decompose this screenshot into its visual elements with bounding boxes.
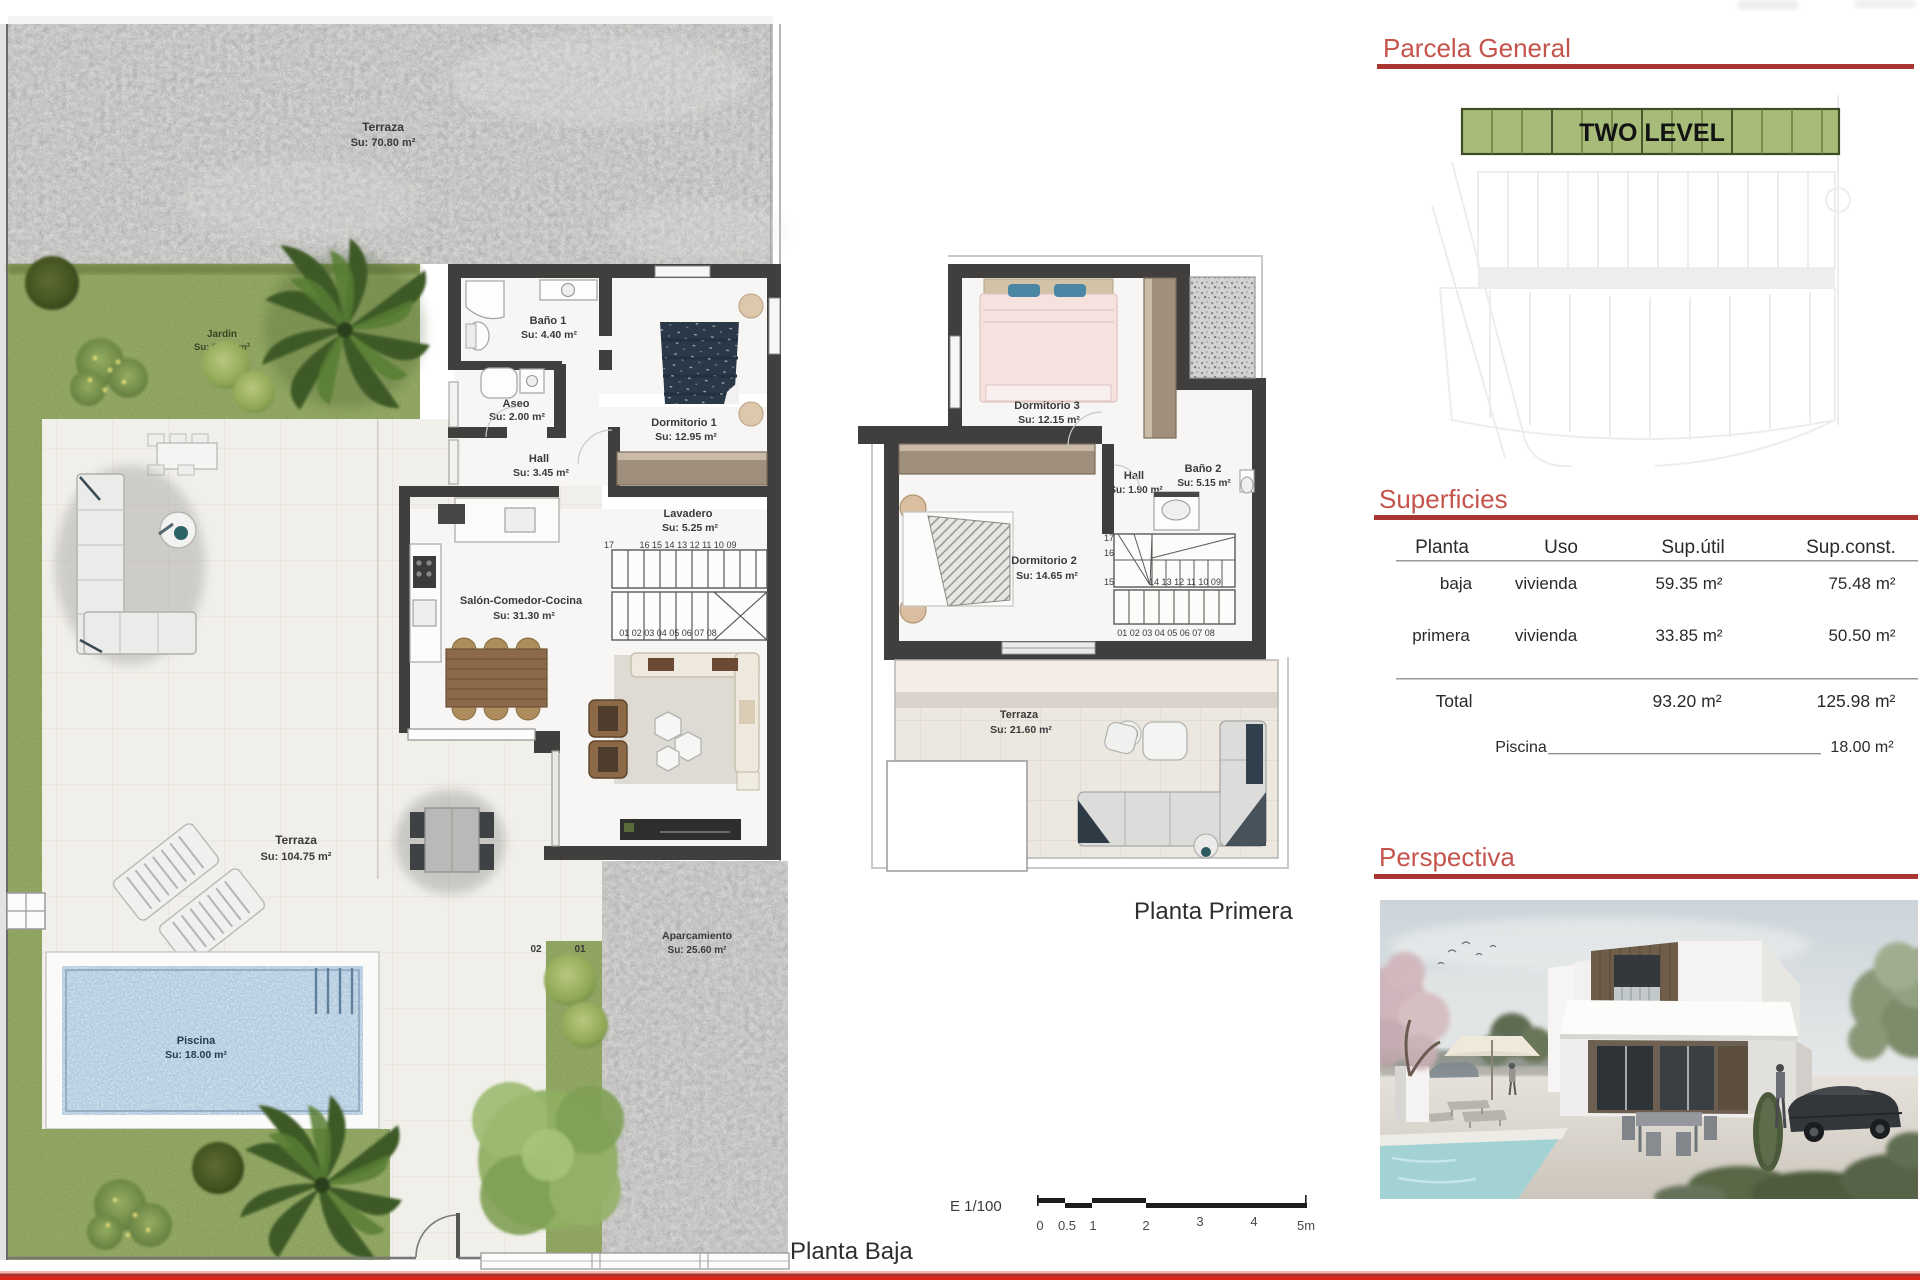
svg-text:3: 3: [1196, 1214, 1203, 1229]
svg-text:Su: 3.45 m²: Su: 3.45 m²: [513, 467, 570, 479]
svg-text:50.50 m²: 50.50 m²: [1828, 626, 1895, 645]
svg-text:01 02 03 04 05 06 07 08: 01 02 03 04 05 06 07 08: [1117, 628, 1215, 638]
svg-text:01 02 03 04 05 06 07 08: 01 02 03 04 05 06 07 08: [619, 628, 717, 638]
svg-text:0: 0: [1036, 1218, 1043, 1233]
svg-text:Su: 14.65 m²: Su: 14.65 m²: [1016, 570, 1078, 582]
svg-text:Hall: Hall: [1124, 470, 1144, 482]
svg-text:125.98 m²: 125.98 m²: [1817, 691, 1896, 711]
svg-text:Su: 21.60 m²: Su: 21.60 m²: [990, 724, 1052, 736]
svg-text:Salón-Comedor-Cocina: Salón-Comedor-Cocina: [460, 595, 583, 607]
svg-text:Lavadero: Lavadero: [664, 508, 713, 520]
svg-text:Piscina: Piscina: [177, 1035, 216, 1047]
svg-text:baja: baja: [1440, 574, 1473, 593]
svg-text:Uso: Uso: [1544, 537, 1578, 558]
svg-text:vivienda: vivienda: [1515, 626, 1578, 645]
svg-text:Sup.útil: Sup.útil: [1661, 537, 1724, 558]
svg-text:Sup.const.: Sup.const.: [1806, 537, 1896, 558]
svg-text:02: 02: [530, 944, 542, 955]
svg-text:01: 01: [574, 944, 586, 955]
svg-text:Su: 104.75 m²: Su: 104.75 m²: [261, 851, 332, 863]
svg-text:Baño 1: Baño 1: [530, 315, 567, 327]
svg-text:Dormitorio 3: Dormitorio 3: [1014, 400, 1079, 412]
svg-text:17: 17: [604, 540, 614, 550]
svg-text:Terraza: Terraza: [362, 120, 404, 134]
svg-text:2: 2: [1142, 1218, 1149, 1233]
svg-text:Su: 31.30 m²: Su: 31.30 m²: [493, 610, 555, 622]
svg-text:15: 15: [1104, 577, 1114, 587]
svg-text:16: 16: [1104, 548, 1114, 558]
svg-text:Terraza: Terraza: [275, 833, 317, 847]
svg-text:Hall: Hall: [529, 453, 549, 465]
svg-text:33.85 m²: 33.85 m²: [1655, 626, 1722, 645]
svg-text:Planta Primera: Planta Primera: [1134, 898, 1293, 925]
svg-text:Dormitorio 2: Dormitorio 2: [1011, 555, 1076, 567]
svg-text:0.5: 0.5: [1058, 1218, 1076, 1233]
svg-text:Terraza: Terraza: [1000, 709, 1039, 721]
svg-text:18.00 m²: 18.00 m²: [1830, 739, 1894, 756]
svg-text:Su: 70.80 m²: Su: 70.80 m²: [351, 137, 416, 149]
svg-text:Parcela General: Parcela General: [1383, 33, 1571, 63]
svg-text:5m: 5m: [1297, 1218, 1315, 1233]
svg-text:Dormitorio 1: Dormitorio 1: [651, 417, 716, 429]
svg-text:Baño 2: Baño 2: [1185, 463, 1222, 475]
svg-text:Su: 12.95 m²: Su: 12.95 m²: [655, 431, 717, 443]
svg-text:59.35 m²: 59.35 m²: [1655, 574, 1722, 593]
svg-text:Superficies: Superficies: [1379, 484, 1508, 514]
svg-text:E 1/100: E 1/100: [950, 1198, 1002, 1215]
svg-text:Jardin: Jardin: [207, 329, 237, 340]
svg-text:Su: 18.00 m²: Su: 18.00 m²: [165, 1049, 227, 1061]
svg-text:primera: primera: [1412, 626, 1470, 645]
svg-text:Total: Total: [1436, 691, 1473, 711]
svg-text:Su: 4.40 m²: Su: 4.40 m²: [521, 329, 578, 341]
svg-text:Su: 12.15 m²: Su: 12.15 m²: [1018, 414, 1080, 426]
svg-text:4: 4: [1250, 1214, 1257, 1229]
svg-text:17: 17: [1104, 533, 1114, 543]
svg-text:Su: 25.60 m²: Su: 25.60 m²: [668, 945, 728, 956]
svg-text:Piscina: Piscina: [1495, 739, 1547, 756]
svg-text:93.20 m²: 93.20 m²: [1652, 691, 1721, 711]
svg-text:14 13 12 11 10 09: 14 13 12 11 10 09: [1149, 577, 1221, 587]
svg-text:Planta Baja: Planta Baja: [790, 1238, 913, 1265]
svg-text:TWO LEVEL: TWO LEVEL: [1579, 119, 1725, 147]
svg-text:75.48 m²: 75.48 m²: [1828, 574, 1895, 593]
svg-text:Su: 5.15 m²: Su: 5.15 m²: [1177, 478, 1231, 489]
svg-text:Planta: Planta: [1415, 537, 1469, 558]
svg-text:1: 1: [1089, 1218, 1096, 1233]
svg-text:Su: 5.25 m²: Su: 5.25 m²: [662, 522, 719, 534]
svg-text:vivienda: vivienda: [1515, 574, 1578, 593]
svg-text:Aparcamiento: Aparcamiento: [662, 930, 732, 942]
svg-text:Perspectiva: Perspectiva: [1379, 842, 1515, 872]
svg-text:16 15 14 13 12 11 10 09: 16 15 14 13 12 11 10 09: [640, 540, 737, 550]
